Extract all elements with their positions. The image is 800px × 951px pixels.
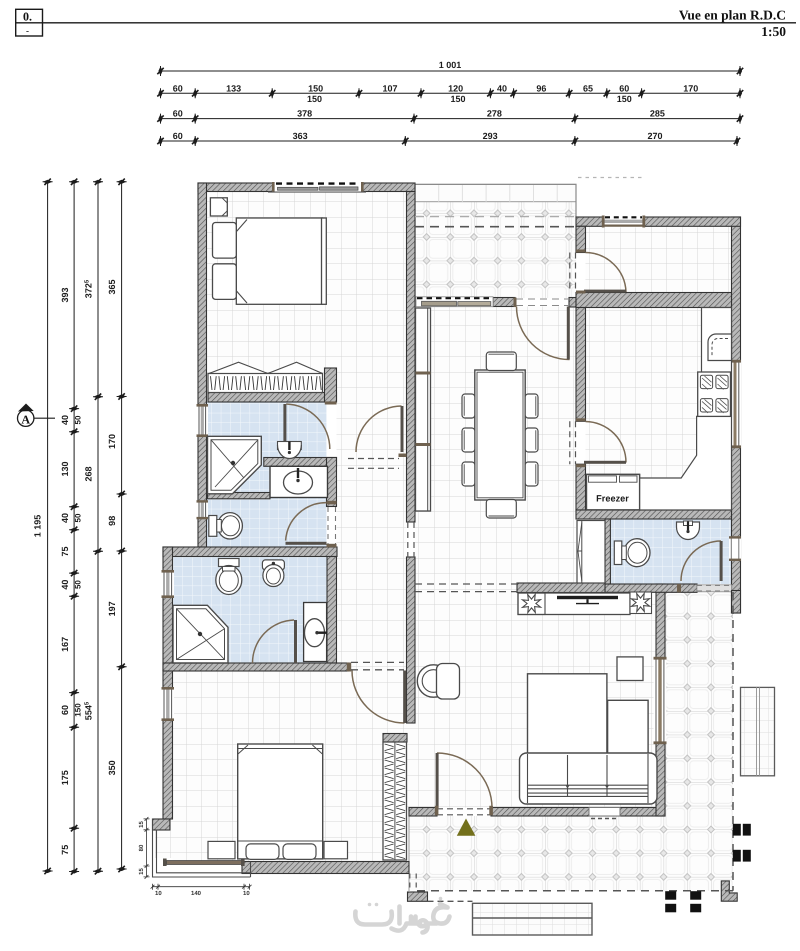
svg-text:1 195: 1 195 [33, 515, 43, 538]
svg-text:50: 50 [74, 580, 83, 589]
svg-text:150: 150 [308, 83, 323, 93]
svg-text:40: 40 [497, 83, 507, 93]
svg-text:170: 170 [107, 434, 117, 449]
svg-text:175: 175 [60, 770, 70, 785]
svg-text:363: 363 [293, 131, 308, 141]
svg-text:150: 150 [617, 94, 632, 104]
svg-text:350: 350 [107, 760, 117, 775]
svg-text:1:50: 1:50 [761, 24, 786, 39]
svg-text:197: 197 [107, 601, 117, 616]
svg-text:75: 75 [60, 845, 70, 855]
svg-text:1 001: 1 001 [439, 60, 462, 70]
svg-text:393: 393 [60, 287, 70, 302]
svg-text:40: 40 [60, 415, 70, 425]
svg-text:0.: 0. [23, 10, 32, 24]
svg-text:167: 167 [60, 637, 70, 652]
svg-text:40: 40 [60, 513, 70, 523]
svg-text:170: 170 [683, 83, 698, 93]
svg-text:50: 50 [74, 513, 83, 522]
svg-text:60: 60 [173, 108, 183, 118]
svg-text:10: 10 [243, 890, 250, 897]
svg-text:15: 15 [138, 868, 145, 875]
svg-text:268: 268 [84, 466, 94, 481]
svg-text:10: 10 [155, 890, 162, 897]
svg-text:107: 107 [382, 83, 397, 93]
svg-text:150: 150 [307, 94, 322, 104]
svg-text:60: 60 [173, 131, 183, 141]
svg-text:A: A [21, 413, 30, 427]
svg-text:140: 140 [191, 890, 202, 897]
svg-text:150: 150 [450, 94, 465, 104]
svg-text:96: 96 [536, 83, 546, 93]
svg-text:75: 75 [60, 546, 70, 556]
svg-text:Vue en plan R.D.C: Vue en plan R.D.C [679, 8, 786, 23]
svg-text:293: 293 [483, 131, 498, 141]
svg-text:278: 278 [487, 108, 502, 118]
svg-text:15: 15 [138, 821, 145, 828]
svg-text:60: 60 [173, 83, 183, 93]
svg-text:65: 65 [583, 83, 593, 93]
svg-text:130: 130 [60, 461, 70, 476]
svg-text:-: - [26, 26, 29, 36]
svg-text:60: 60 [619, 83, 629, 93]
svg-text:270: 270 [647, 131, 662, 141]
svg-text:120: 120 [448, 83, 463, 93]
svg-text:150: 150 [74, 703, 83, 717]
svg-text:50: 50 [74, 415, 83, 424]
svg-text:40: 40 [60, 580, 70, 590]
svg-text:60: 60 [60, 705, 70, 715]
svg-text:133: 133 [226, 83, 241, 93]
svg-text:365: 365 [107, 279, 117, 294]
svg-text:378: 378 [297, 108, 312, 118]
svg-text:80: 80 [138, 844, 145, 851]
svg-text:98: 98 [107, 516, 117, 526]
svg-text:Freezer: Freezer [596, 494, 629, 504]
svg-text:285: 285 [650, 108, 665, 118]
